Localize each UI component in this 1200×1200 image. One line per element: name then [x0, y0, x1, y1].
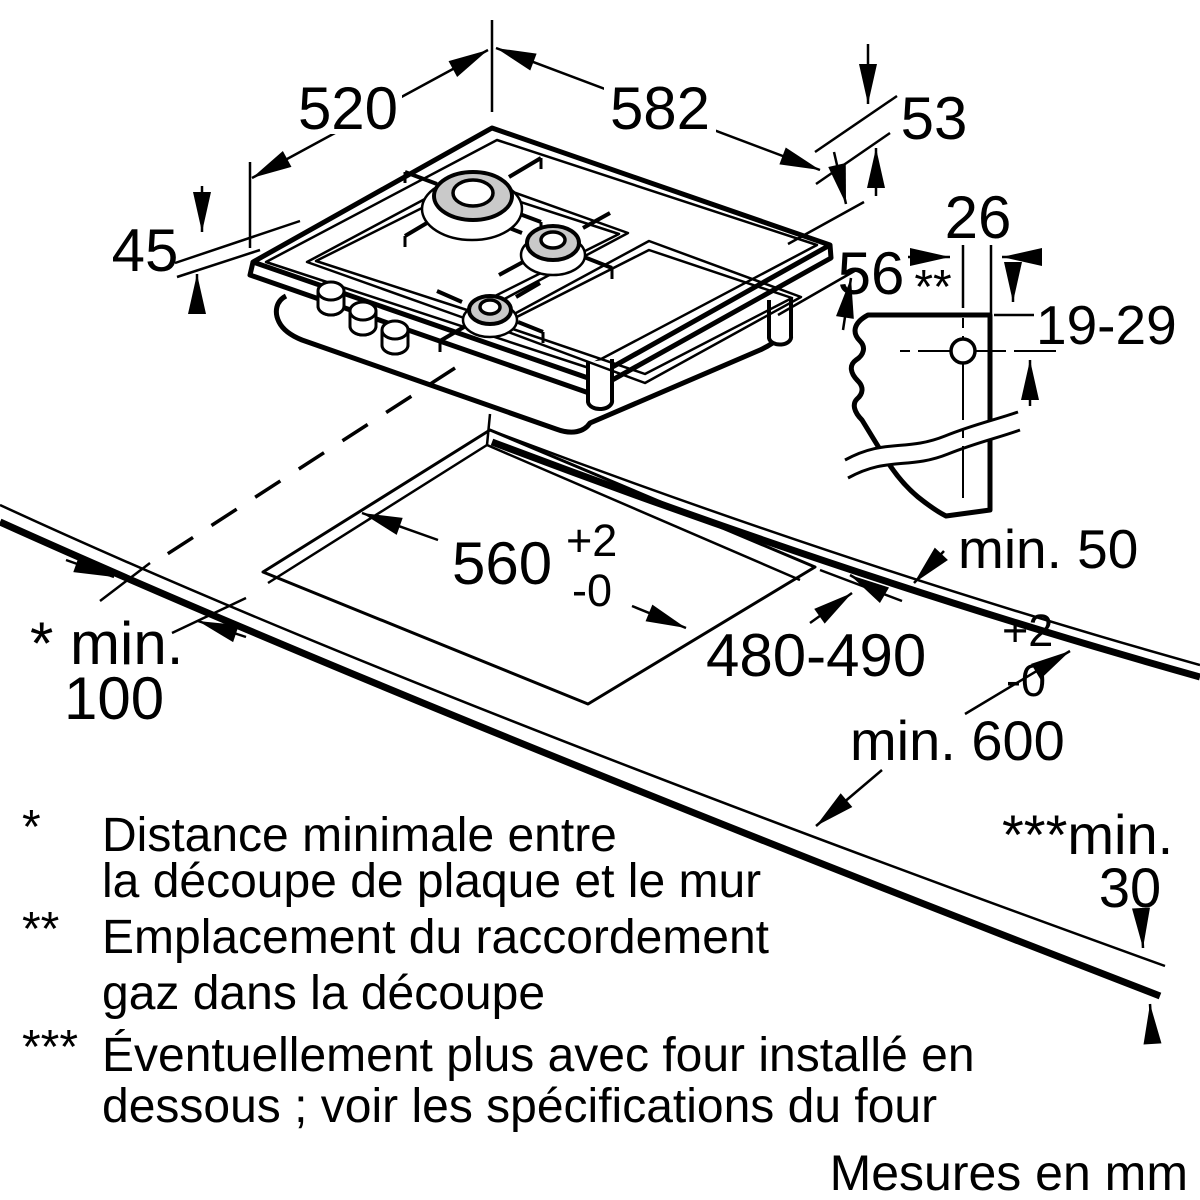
burner-medium [521, 226, 585, 275]
footnote-2-line-2: gaz dans la découpe [102, 967, 545, 1020]
ext-line-53-lower [816, 133, 890, 184]
gas-connection-point [951, 339, 975, 363]
knob-2 [350, 302, 376, 335]
footnote-3-line-2: dessous ; voir les spécifications du fou… [102, 1080, 937, 1133]
dim-arrow-30-up [1150, 1004, 1152, 1036]
edge-section-profile [845, 315, 1056, 516]
dim-19-29-label: 19-29 [1036, 294, 1177, 356]
ext-line-56-upper [788, 202, 864, 244]
projection-dashed-line [155, 368, 455, 562]
dim-560-tol-sub: -0 [572, 565, 612, 616]
dim-480-490-tol-sub: -0 [1006, 655, 1046, 706]
leader-560 [362, 513, 438, 540]
dim-56-label: 56 [838, 240, 905, 307]
dim-min600-label: min. 600 [850, 709, 1065, 772]
footnote-2-marker: ** [22, 903, 59, 956]
dim-56-gas-marker: ** [914, 261, 951, 314]
dim-min50-label: min. 50 [958, 518, 1138, 580]
knob-1 [318, 282, 344, 315]
installation-diagram-page: 520 582 53 45 56 ** 26 19-29 min. 50 560… [0, 0, 1200, 1200]
dim-560-tol-sup: +2 [566, 515, 617, 566]
dim-560-label: 560 [452, 530, 552, 597]
dim-520-label: 520 [298, 75, 398, 142]
leader-480-right [810, 593, 852, 623]
burner-small [463, 296, 517, 337]
cutout-corner-tick [487, 414, 490, 445]
dim-480-490-label: 480-490 [706, 622, 926, 689]
diagram-canvas: 520 582 53 45 56 ** 26 19-29 min. 50 560… [0, 0, 1200, 1200]
footnote-1-line-2: la découpe de plaque et le mur [102, 855, 761, 908]
dim-min100-value: 100 [64, 665, 164, 732]
hob [250, 128, 831, 432]
knob-3 [382, 321, 408, 354]
dim-arrow-56-down [834, 152, 846, 204]
dim-480-490-tol-sup: +2 [1002, 605, 1053, 656]
dim-26-label: 26 [945, 184, 1012, 251]
dim-45-label: 45 [112, 217, 179, 284]
footnote-3-marker: *** [22, 1021, 78, 1074]
footnote-1-marker: * [22, 801, 41, 854]
ext-line-53-upper [815, 96, 897, 152]
footnote-2-line-1: Emplacement du raccordement [102, 911, 769, 964]
leader-min600-down [816, 770, 882, 826]
dim-min30-value: 30 [1099, 856, 1161, 919]
dim-53-label: 53 [901, 85, 968, 152]
units-note: Mesures en mm [830, 1145, 1188, 1200]
footnote-3-line-1: Éventuellement plus avec four installé e… [102, 1029, 975, 1082]
leader-480-left [632, 606, 686, 628]
ext-line-45-lower [177, 250, 260, 277]
leader-min50 [914, 551, 944, 583]
dim-582-label: 582 [610, 75, 710, 142]
